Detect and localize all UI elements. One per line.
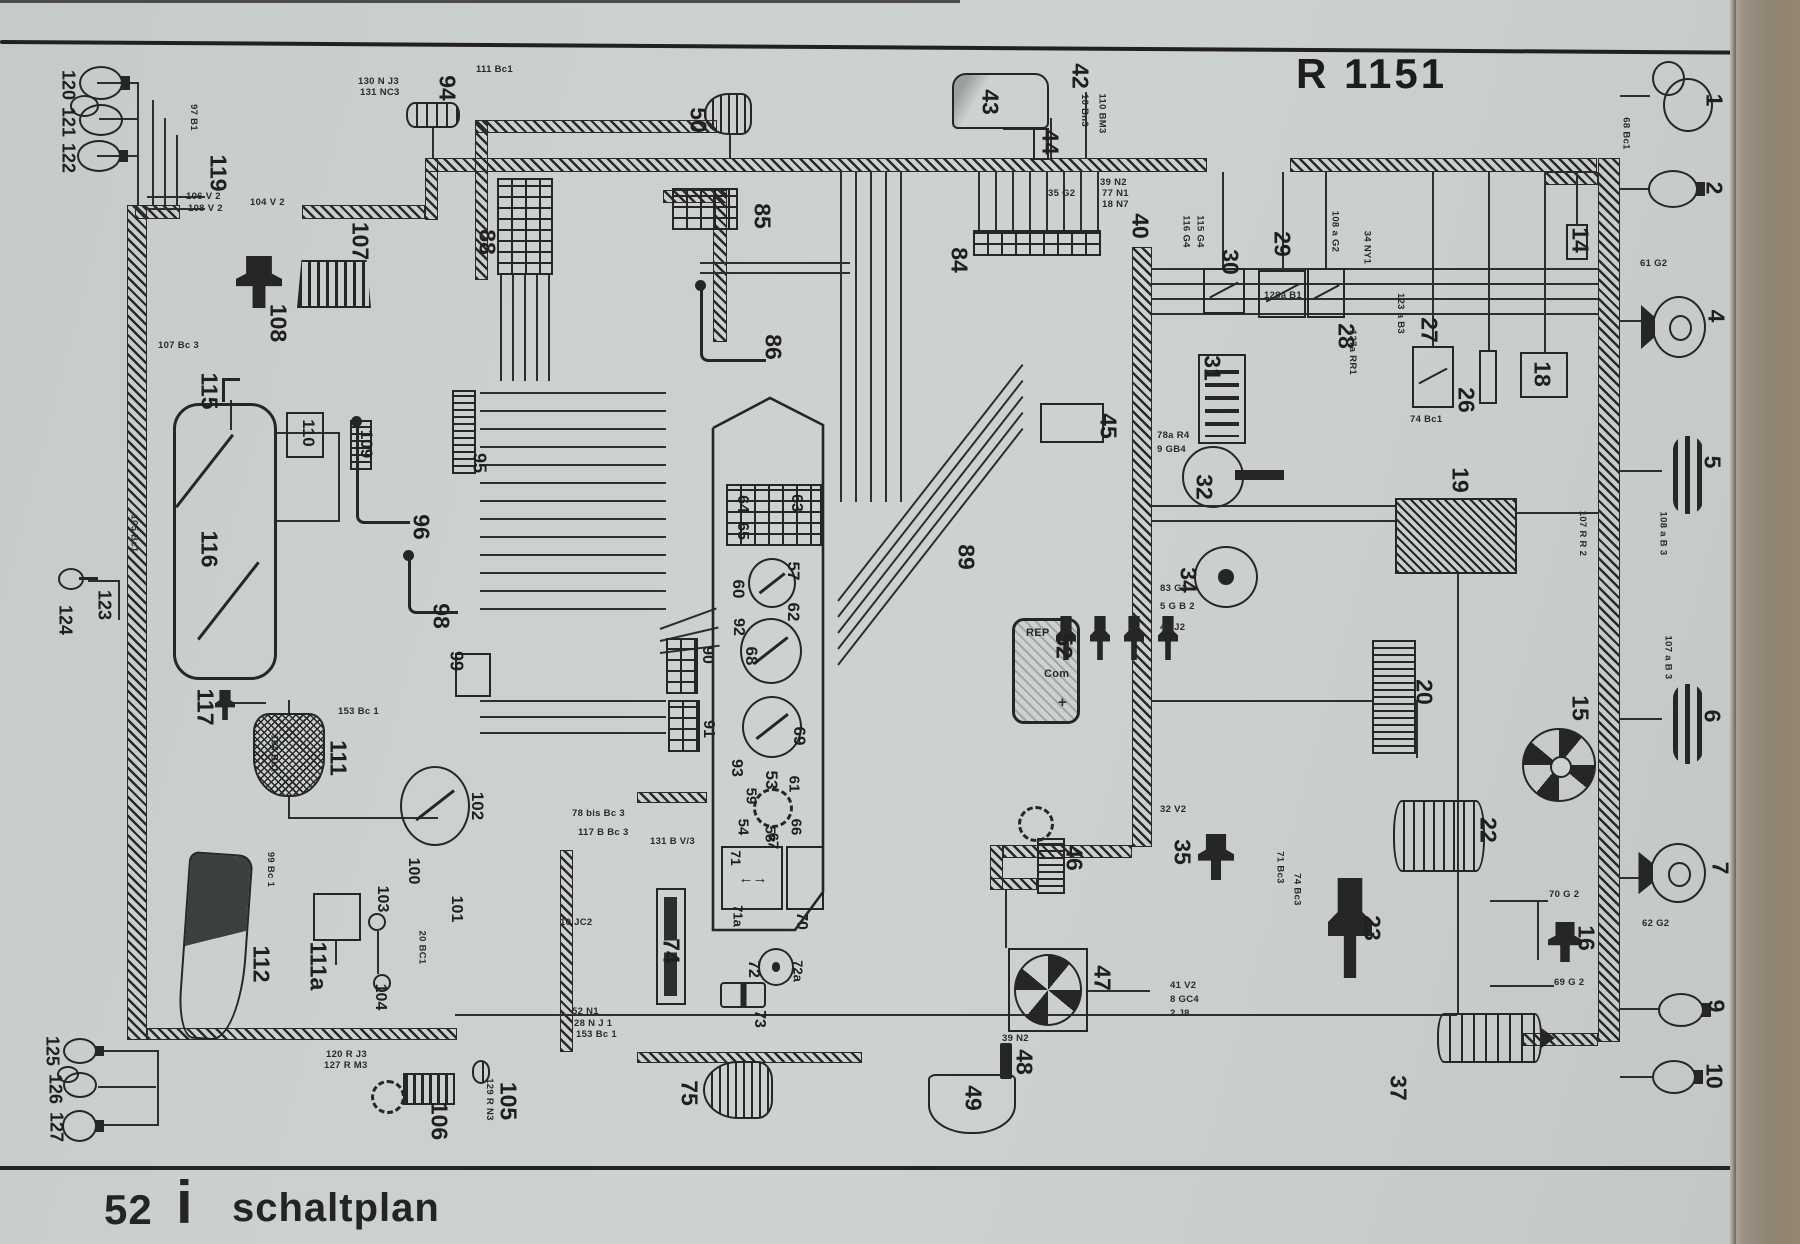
instrument-panel-outline — [0, 0, 1800, 1244]
page-fold — [1730, 0, 1800, 1244]
section-letter: i — [176, 1168, 193, 1237]
section-title: schaltplan — [232, 1186, 440, 1231]
page-number: 52 — [104, 1186, 153, 1234]
footer-rule — [0, 1166, 1760, 1170]
page-fold-crease — [1731, 0, 1736, 1244]
scanned-wiring-diagram-page: 1245679101415161819202223262728293031323… — [0, 0, 1800, 1244]
diagram-title: R 1151 — [1296, 50, 1447, 98]
